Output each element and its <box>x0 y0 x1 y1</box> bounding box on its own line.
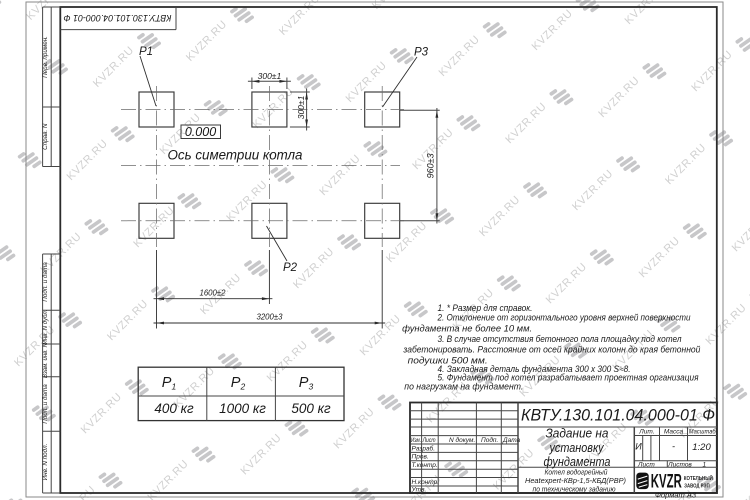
svg-text:Лист: Лист <box>422 437 436 444</box>
svg-text:Листов: Листов <box>667 461 692 468</box>
svg-text:300±1: 300±1 <box>258 71 282 81</box>
svg-text:Котел водогрейный: Котел водогрейный <box>545 469 608 477</box>
svg-text:1000 кг: 1000 кг <box>219 401 266 416</box>
svg-text:Утв.: Утв. <box>411 486 427 493</box>
svg-text:Формат А3: Формат А3 <box>655 490 697 499</box>
svg-text:Изм.: Изм. <box>411 437 421 444</box>
svg-text:Р2: Р2 <box>283 262 298 274</box>
svg-text:500 кг: 500 кг <box>291 401 331 416</box>
svg-text:КОТЕЛЬНЫЙ: КОТЕЛЬНЫЙ <box>684 474 713 482</box>
svg-text:Взам. инв. N: Взам. инв. N <box>43 342 49 378</box>
svg-text:0.000: 0.000 <box>185 125 216 139</box>
svg-text:Подп. и дата: Подп. и дата <box>41 384 49 424</box>
svg-text:-: - <box>672 442 675 452</box>
svg-text:забетонировать. Расстояние от: забетонировать. Расстояние от осей крайн… <box>402 345 700 355</box>
svg-text:Масса: Масса <box>664 428 684 435</box>
svg-text:КВТУ.130.101.04.000-01 Ф: КВТУ.130.101.04.000-01 Ф <box>63 12 171 23</box>
svg-text:300±1: 300±1 <box>296 95 306 119</box>
svg-text:Разраб.: Разраб. <box>412 444 436 452</box>
svg-text:Н.контр.: Н.контр. <box>412 479 440 486</box>
svg-text:400 кг: 400 кг <box>154 401 194 416</box>
svg-text:по техническому заданию: по техническому заданию <box>533 485 617 493</box>
svg-text:Перв. примен.: Перв. примен. <box>42 36 49 78</box>
svg-text:Heatexpert-КВр-1,5-КБД(РВР): Heatexpert-КВр-1,5-КБД(РВР) <box>525 478 626 485</box>
svg-text:Масштаб: Масштаб <box>689 427 716 435</box>
svg-text:Инв. N дубл.: Инв. N дубл. <box>43 310 49 345</box>
svg-text:Справ. N: Справ. N <box>42 123 49 150</box>
svg-text:Подп.: Подп. <box>481 436 498 444</box>
svg-text:Инв. N подл.: Инв. N подл. <box>41 444 49 481</box>
svg-text:960±3: 960±3 <box>426 153 436 178</box>
svg-text:KVZR: KVZR <box>651 471 682 492</box>
svg-text:Дата: Дата <box>502 437 521 444</box>
svg-text:КВТУ.130.101.04.000-01 Ф: КВТУ.130.101.04.000-01 Ф <box>521 406 715 424</box>
svg-text:Пров.: Пров. <box>412 454 429 461</box>
svg-text:Р3: Р3 <box>414 47 429 59</box>
svg-text:И: И <box>635 442 642 452</box>
svg-text:Задание на: Задание на <box>546 426 609 441</box>
svg-text:фундамента не более 10 мм.: фундамента не более 10 мм. <box>402 323 532 333</box>
svg-text:Подп. и дата: Подп. и дата <box>41 262 49 302</box>
svg-text:1600±2: 1600±2 <box>200 288 226 298</box>
svg-text:N докум.: N докум. <box>449 436 475 444</box>
svg-text:по нагрузкам на фундамент.: по нагрузкам на фундамент. <box>404 382 523 392</box>
svg-text:2. Отклонение от горизонтальн: 2. Отклонение от горизонтального уровня … <box>437 313 691 323</box>
svg-text:3200±3: 3200±3 <box>257 312 283 322</box>
svg-text:3. В случае отсутствия бетонн: 3. В случае отсутствия бетонного пола пл… <box>438 334 682 344</box>
svg-text:установку: установку <box>549 440 605 455</box>
svg-text:Р1: Р1 <box>139 46 153 58</box>
svg-text:ЗАВОД РЭП: ЗАВОД РЭП <box>684 484 709 490</box>
svg-text:фундамента: фундамента <box>544 454 611 469</box>
svg-text:Лист: Лист <box>637 461 655 468</box>
svg-text:Т.контр.: Т.контр. <box>412 462 438 469</box>
svg-text:1:20: 1:20 <box>692 442 711 453</box>
svg-text:Лит.: Лит. <box>638 428 654 435</box>
svg-text:1: 1 <box>702 461 706 468</box>
svg-text:Ось симетрии котла: Ось симетрии котла <box>168 148 303 163</box>
